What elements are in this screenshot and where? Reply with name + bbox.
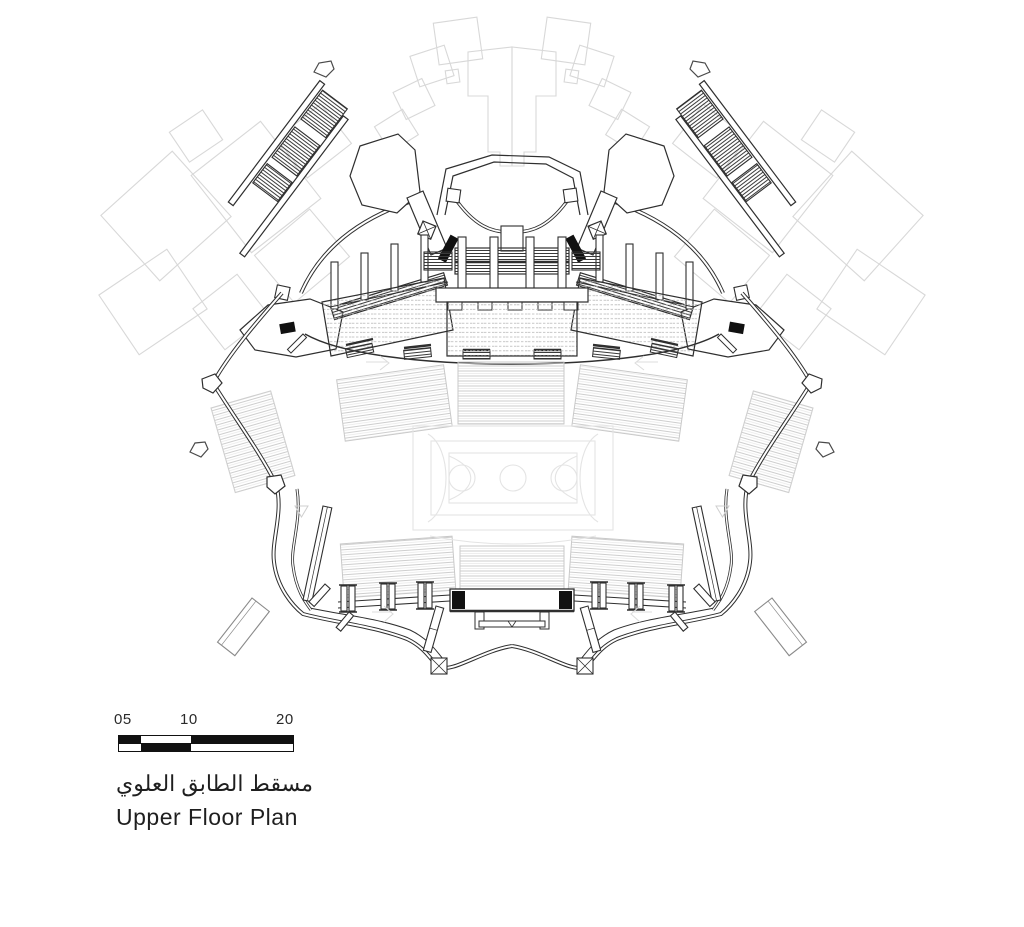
title-english: Upper Floor Plan <box>116 802 313 832</box>
drawing-title: مسقط الطابق العلوي Upper Floor Plan <box>116 769 313 832</box>
stage-bottom <box>450 589 574 629</box>
black-end-right <box>559 591 572 609</box>
scale-bar-labels: 05 10 20 <box>118 711 294 731</box>
seating-lower-faint-left <box>340 536 455 598</box>
stair-ramp-left <box>208 81 357 257</box>
seating-mid-faint-left <box>337 365 453 441</box>
scale-bar: 05 10 20 <box>118 711 294 752</box>
drawing-sheet: 05 10 20 مسقط الطابق العلوي Upper Floor … <box>0 0 1024 927</box>
scale-label-2: 20 <box>276 711 294 728</box>
scale-label-0: 05 <box>114 711 132 728</box>
title-arabic: مسقط الطابق العلوي <box>116 769 313 799</box>
seating-upper-center <box>447 302 577 356</box>
scale-bar-graphic <box>118 735 294 752</box>
ramp-landing-left <box>350 134 447 255</box>
black-end-left <box>452 591 465 609</box>
scale-label-1: 10 <box>180 711 198 728</box>
court-below-faint <box>413 426 613 544</box>
seating-faint-center <box>458 362 564 594</box>
